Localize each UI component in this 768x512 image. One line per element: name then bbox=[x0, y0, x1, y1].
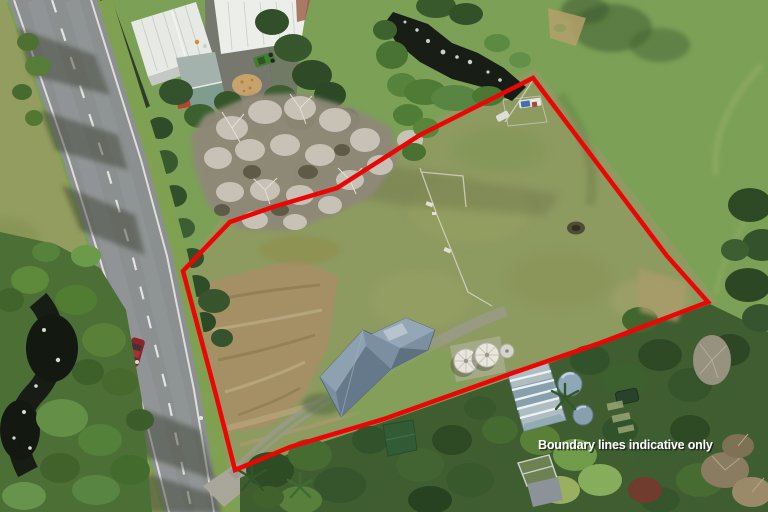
photo-grain bbox=[0, 0, 768, 512]
aerial-property-photo: Boundary lines indicative only Boundary … bbox=[0, 0, 768, 512]
aerial-scene: Boundary lines indicative only Boundary … bbox=[0, 0, 768, 512]
caption-text: Boundary lines indicative only bbox=[538, 438, 713, 452]
